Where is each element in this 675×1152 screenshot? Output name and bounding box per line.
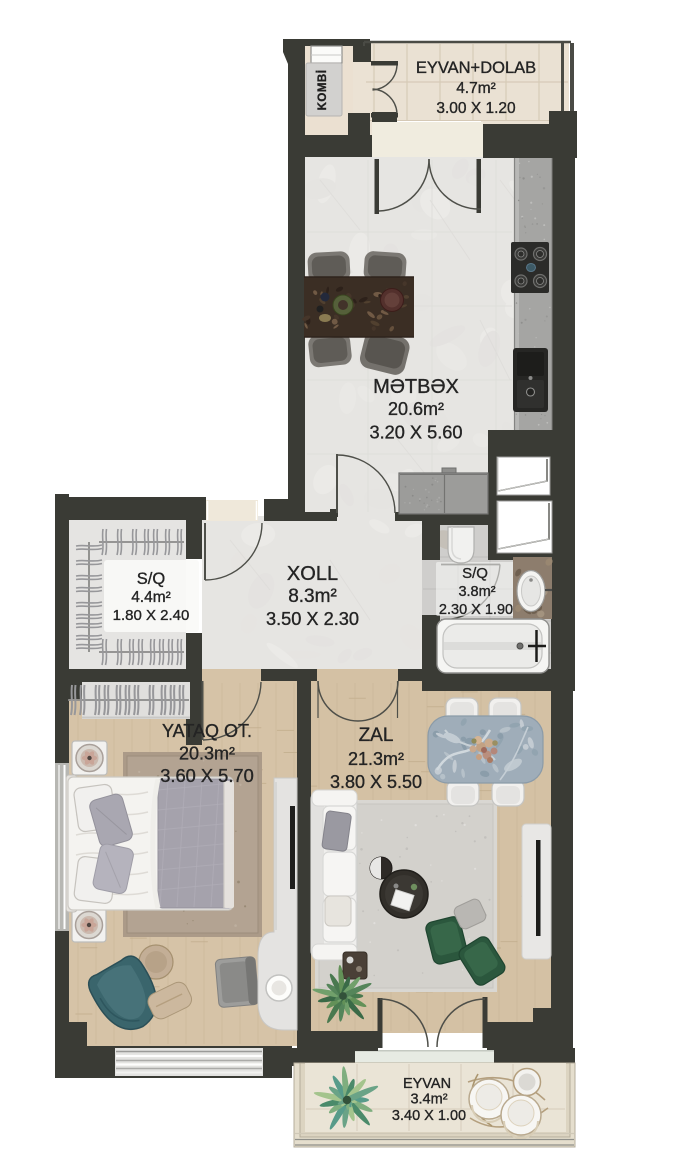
svg-text:3.00 X 1.20: 3.00 X 1.20 [436, 100, 516, 117]
svg-text:KOMBİ: KOMBİ [316, 70, 329, 111]
svg-text:MƏTBƏX: MƏTBƏX [373, 376, 459, 398]
svg-text:8.3m²: 8.3m² [288, 586, 337, 607]
svg-text:20.6m²: 20.6m² [388, 399, 444, 419]
svg-text:3.8m²: 3.8m² [458, 584, 495, 600]
svg-text:4.7m²: 4.7m² [456, 80, 496, 97]
svg-text:S/Q: S/Q [462, 565, 488, 582]
svg-text:EYVAN+DOLAB: EYVAN+DOLAB [416, 59, 536, 77]
svg-text:S/Q: S/Q [137, 570, 166, 588]
svg-text:YATAQ OT.: YATAQ OT. [162, 721, 252, 741]
svg-text:3.60 X 5.70: 3.60 X 5.70 [160, 765, 254, 786]
svg-text:3.4m²: 3.4m² [410, 1092, 447, 1108]
svg-text:3.40 X 1.00: 3.40 X 1.00 [392, 1108, 466, 1124]
svg-text:21.3m²: 21.3m² [348, 749, 404, 769]
svg-text:3.50 X 2.30: 3.50 X 2.30 [266, 609, 359, 629]
svg-text:4.4m²: 4.4m² [131, 589, 171, 606]
svg-text:3.80 X 5.50: 3.80 X 5.50 [330, 772, 422, 792]
svg-text:20.3m²: 20.3m² [179, 744, 235, 764]
svg-text:EYVAN: EYVAN [403, 1076, 451, 1092]
svg-text:XOLL: XOLL [287, 563, 338, 585]
svg-text:2.30 X 1.90: 2.30 X 1.90 [439, 602, 513, 618]
svg-text:1.80 X 2.40: 1.80 X 2.40 [113, 607, 190, 624]
svg-text:3.20 X 5.60: 3.20 X 5.60 [369, 423, 462, 443]
svg-text:ZAL: ZAL [359, 725, 394, 746]
